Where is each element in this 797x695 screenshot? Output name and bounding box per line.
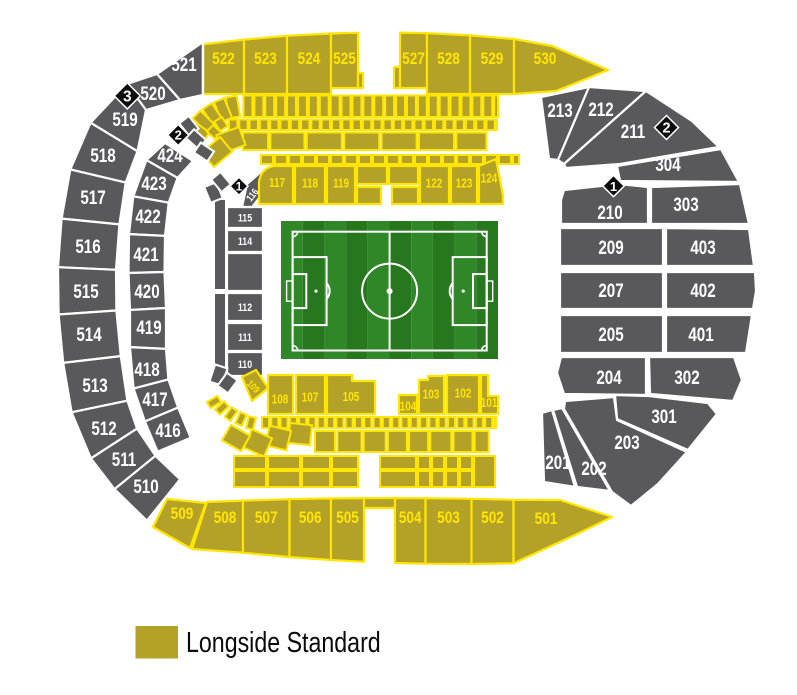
svg-text:122: 122 (426, 178, 443, 191)
svg-text:402: 402 (690, 279, 715, 301)
svg-text:401: 401 (688, 323, 714, 345)
svg-text:3: 3 (123, 88, 132, 105)
svg-text:510: 510 (133, 475, 158, 497)
svg-text:303: 303 (673, 193, 698, 215)
svg-text:123: 123 (456, 178, 473, 191)
svg-text:2: 2 (175, 128, 182, 143)
svg-text:213: 213 (547, 99, 572, 121)
svg-text:524: 524 (298, 50, 321, 69)
svg-text:518: 518 (90, 144, 116, 166)
svg-text:Longside Standard: Longside Standard (186, 625, 381, 658)
svg-text:530: 530 (534, 50, 557, 69)
svg-text:421: 421 (133, 243, 159, 265)
svg-text:203: 203 (614, 431, 639, 453)
svg-text:503: 503 (437, 509, 460, 528)
svg-text:519: 519 (112, 108, 137, 130)
svg-text:101: 101 (481, 397, 498, 410)
svg-text:422: 422 (135, 205, 160, 227)
svg-text:111: 111 (238, 332, 252, 344)
svg-text:515: 515 (73, 280, 99, 302)
svg-text:210: 210 (597, 201, 622, 223)
svg-text:114: 114 (238, 236, 253, 248)
svg-text:1: 1 (236, 181, 243, 193)
svg-text:501: 501 (535, 510, 558, 529)
svg-text:509: 509 (171, 505, 194, 524)
svg-text:516: 516 (75, 235, 100, 257)
svg-text:520: 520 (140, 82, 165, 104)
svg-text:416: 416 (155, 419, 180, 441)
svg-text:502: 502 (481, 509, 504, 528)
svg-text:506: 506 (299, 509, 322, 528)
svg-text:512: 512 (91, 417, 116, 439)
svg-text:517: 517 (80, 186, 105, 208)
svg-text:507: 507 (255, 509, 278, 528)
svg-text:511: 511 (112, 448, 137, 470)
svg-text:102: 102 (455, 388, 472, 401)
svg-text:108: 108 (272, 394, 289, 407)
svg-text:202: 202 (581, 457, 606, 479)
svg-text:523: 523 (254, 50, 277, 69)
svg-text:207: 207 (598, 279, 623, 301)
svg-text:119: 119 (333, 178, 349, 191)
svg-text:521: 521 (171, 53, 197, 75)
svg-text:211: 211 (621, 120, 646, 142)
svg-text:525: 525 (333, 50, 356, 69)
svg-text:513: 513 (82, 374, 107, 396)
svg-text:420: 420 (134, 280, 159, 302)
svg-text:522: 522 (212, 50, 235, 69)
svg-text:403: 403 (690, 236, 715, 258)
svg-text:505: 505 (336, 509, 359, 528)
svg-text:508: 508 (214, 509, 237, 528)
svg-text:301: 301 (651, 405, 677, 427)
svg-text:209: 209 (598, 236, 623, 258)
svg-text:115: 115 (238, 213, 253, 225)
svg-text:204: 204 (596, 366, 622, 388)
svg-text:105: 105 (343, 391, 360, 404)
svg-text:423: 423 (141, 172, 166, 194)
svg-text:529: 529 (481, 50, 504, 69)
svg-text:201: 201 (545, 451, 571, 473)
svg-text:107: 107 (302, 392, 319, 405)
svg-text:205: 205 (598, 323, 624, 345)
svg-text:1: 1 (610, 179, 617, 194)
svg-text:514: 514 (76, 323, 102, 345)
svg-text:118: 118 (302, 178, 318, 191)
svg-text:527: 527 (402, 50, 425, 69)
svg-text:212: 212 (588, 98, 613, 120)
svg-text:304: 304 (655, 153, 681, 175)
svg-text:424: 424 (157, 144, 183, 166)
svg-text:103: 103 (423, 389, 440, 402)
svg-text:124: 124 (481, 173, 498, 186)
svg-text:2: 2 (662, 121, 670, 137)
svg-text:112: 112 (238, 302, 253, 314)
svg-text:302: 302 (674, 366, 699, 388)
svg-text:418: 418 (134, 358, 160, 380)
svg-text:417: 417 (142, 388, 167, 410)
svg-text:104: 104 (400, 401, 417, 414)
svg-text:419: 419 (136, 316, 161, 338)
svg-text:117: 117 (269, 177, 285, 190)
svg-text:528: 528 (437, 50, 460, 69)
svg-text:110: 110 (238, 359, 253, 371)
svg-text:504: 504 (399, 509, 422, 528)
